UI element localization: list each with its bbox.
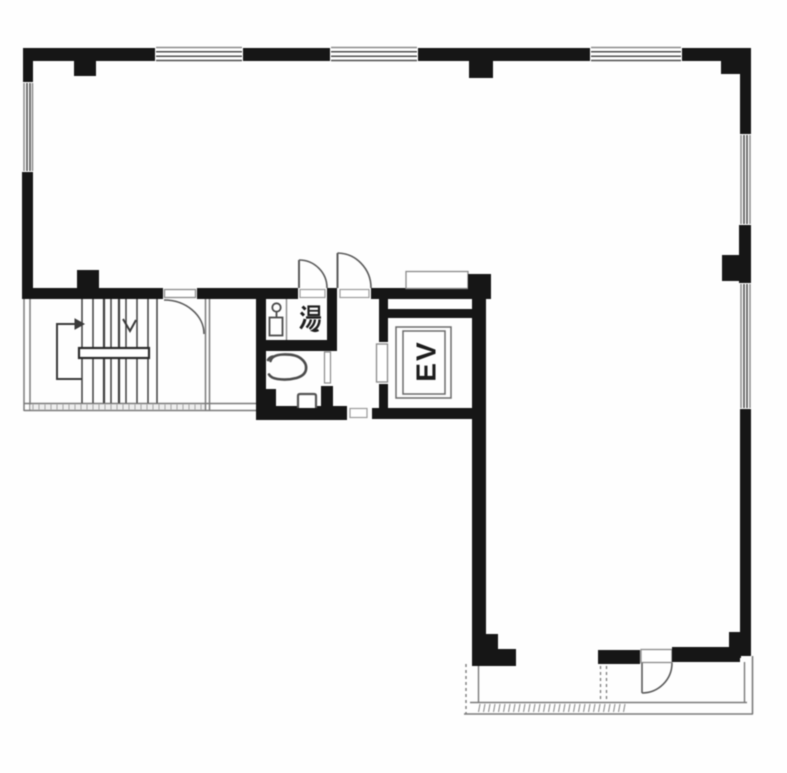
svg-text:EV: EV [411, 340, 442, 381]
